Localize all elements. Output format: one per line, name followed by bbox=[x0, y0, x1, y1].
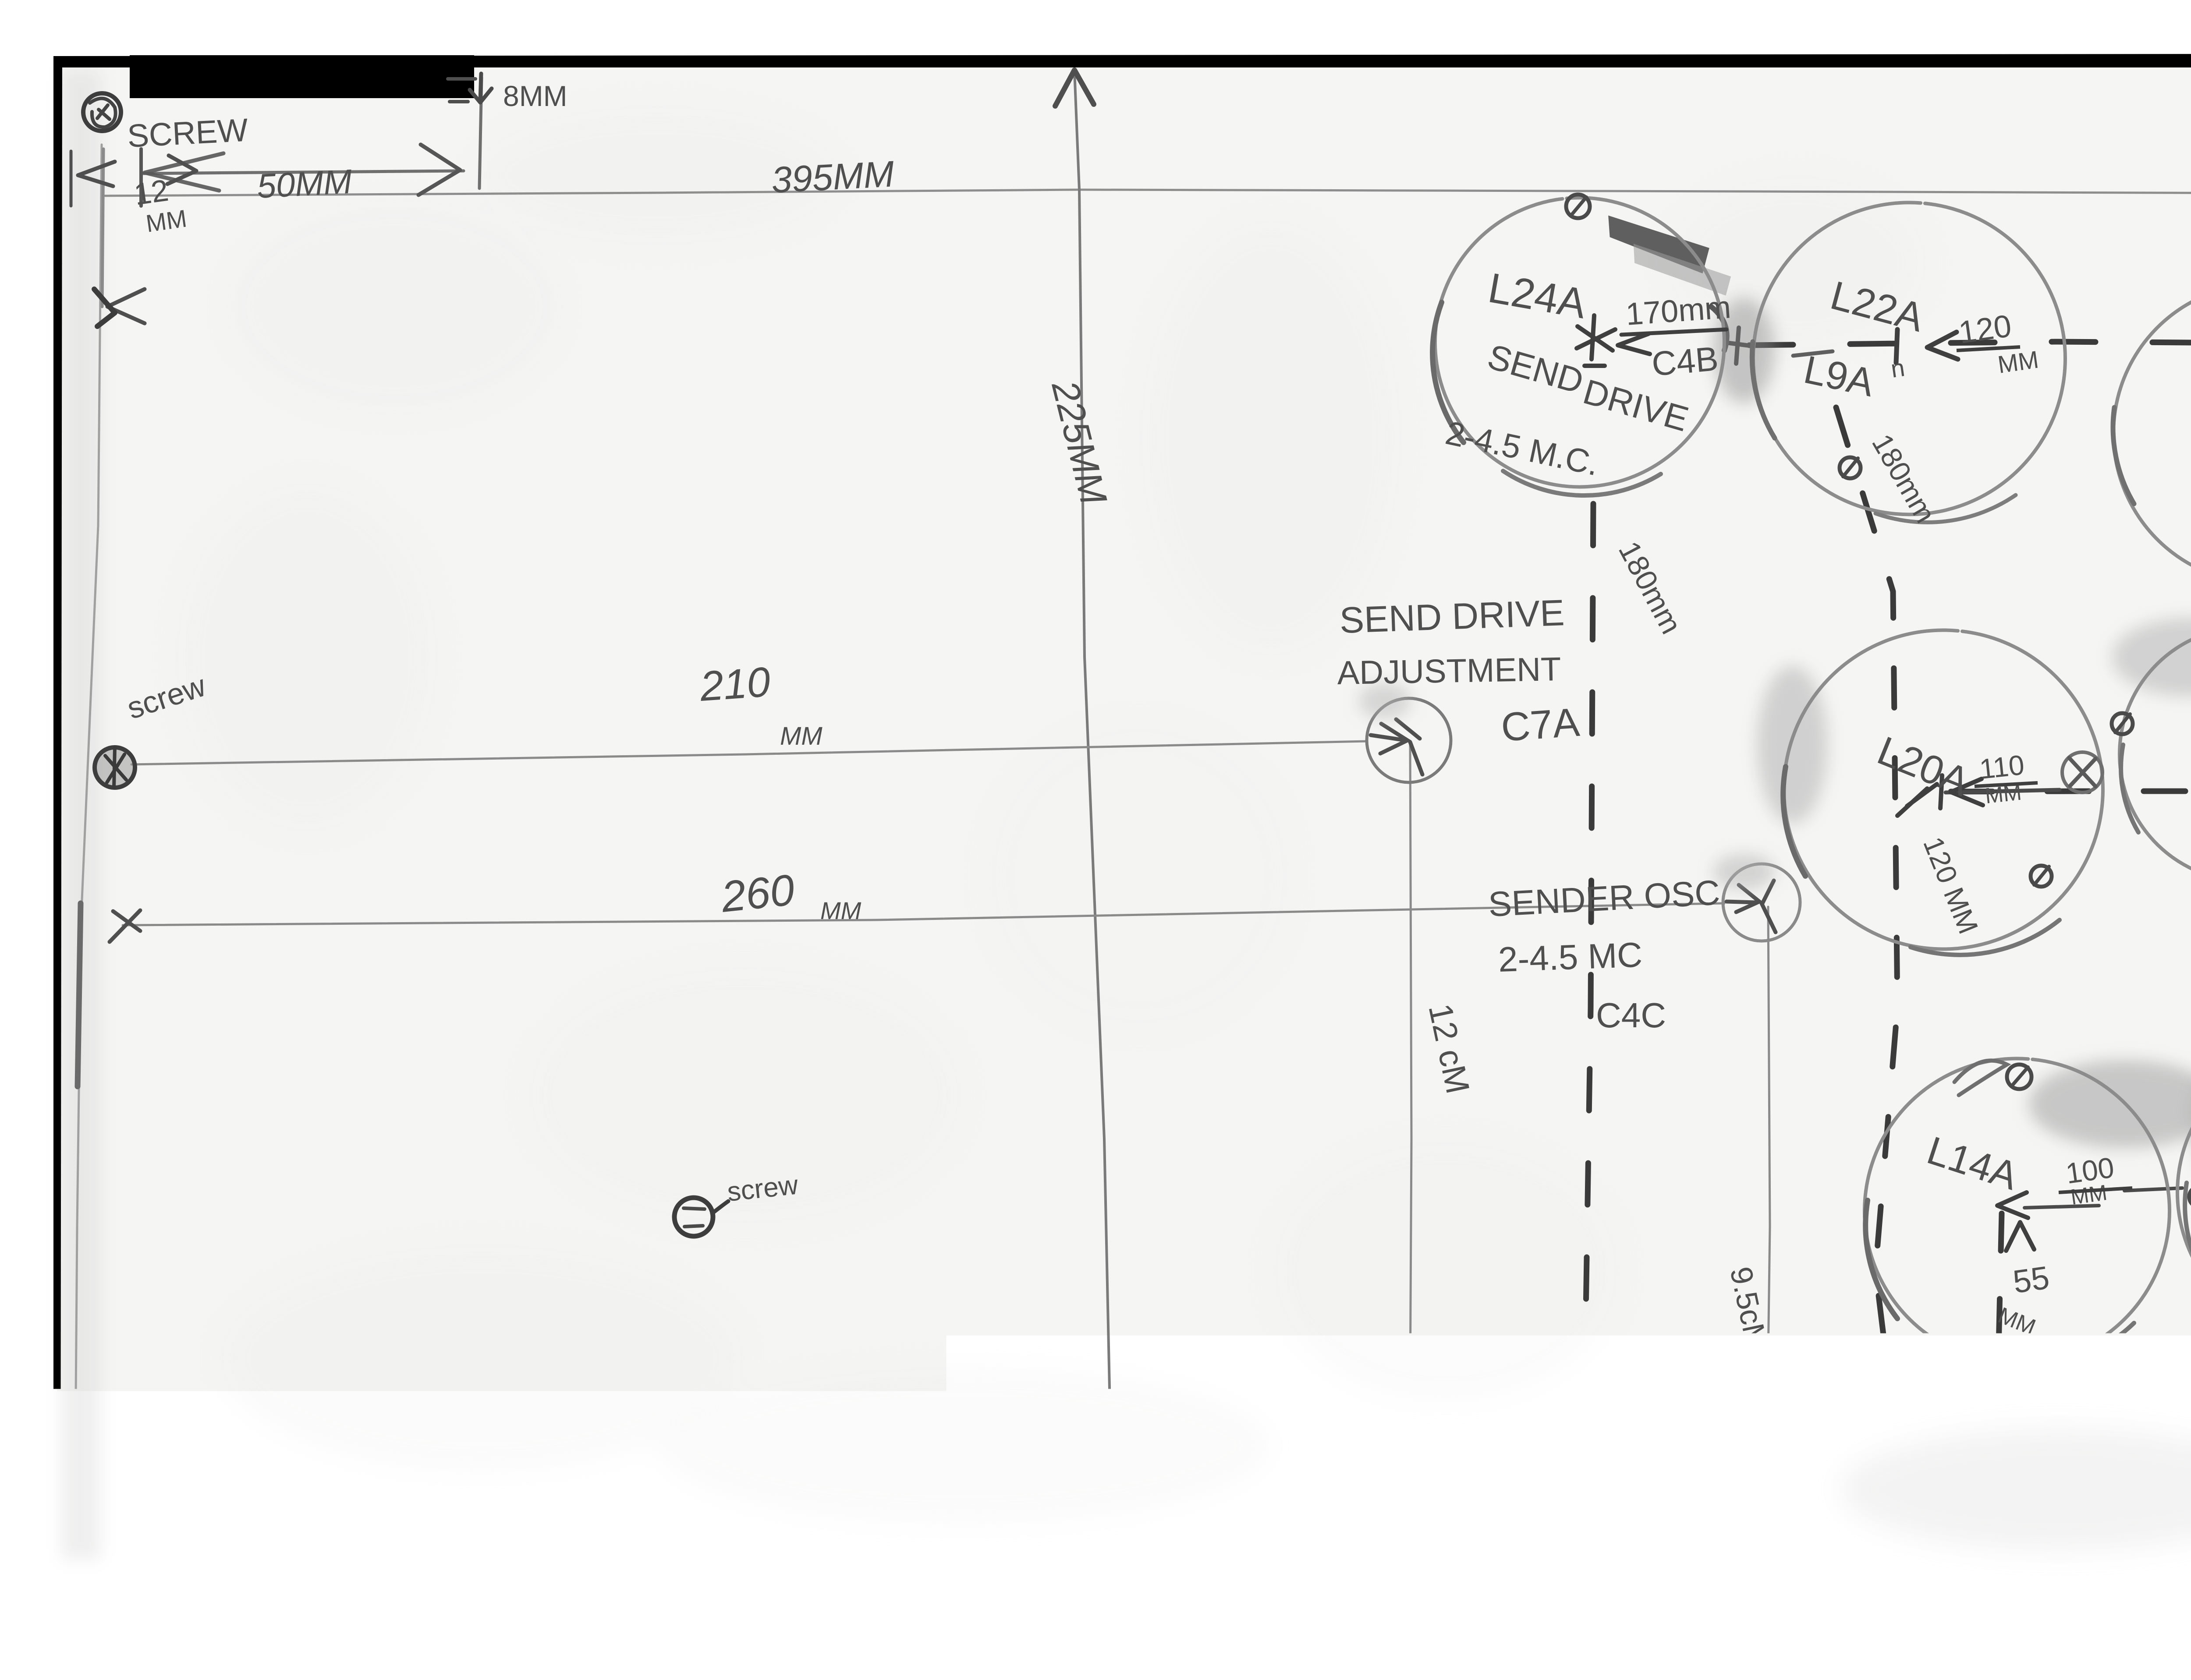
svg-text:C4B: C4B bbox=[1650, 339, 1720, 383]
svg-text:MM: MM bbox=[1996, 346, 2040, 378]
svg-text:ADJUSTMENT: ADJUSTMENT bbox=[1337, 651, 1561, 692]
svg-text:C8C: C8C bbox=[1881, 1510, 1939, 1543]
svg-text:SEND DRIVE: SEND DRIVE bbox=[1339, 592, 1565, 641]
svg-text:110: 110 bbox=[1978, 749, 2026, 785]
svg-text:50MM: 50MM bbox=[256, 162, 353, 205]
svg-text:MM: MM bbox=[780, 722, 823, 750]
svg-text:260: 260 bbox=[719, 865, 797, 922]
svg-text:120: 120 bbox=[1957, 308, 2014, 350]
svg-text:MM: MM bbox=[820, 897, 862, 924]
svg-text:210: 210 bbox=[698, 658, 772, 710]
svg-text:12: 12 bbox=[132, 173, 170, 212]
svg-text:C4C: C4C bbox=[1596, 996, 1666, 1035]
svg-text:2-4.5 MC: 2-4.5 MC bbox=[1804, 1476, 1924, 1512]
svg-text:170mm: 170mm bbox=[1625, 290, 1732, 332]
svg-text:8MM: 8MM bbox=[503, 80, 567, 112]
svg-text:MM: MM bbox=[2069, 1180, 2109, 1210]
svg-text:2-4.5 MC: 2-4.5 MC bbox=[1497, 935, 1643, 979]
svg-text:SCREW: SCREW bbox=[126, 112, 249, 154]
svg-text:MM: MM bbox=[144, 205, 188, 237]
svg-text:C7A: C7A bbox=[1500, 700, 1581, 750]
svg-text:395MM: 395MM bbox=[770, 153, 895, 201]
svg-text:55: 55 bbox=[2011, 1259, 2052, 1300]
